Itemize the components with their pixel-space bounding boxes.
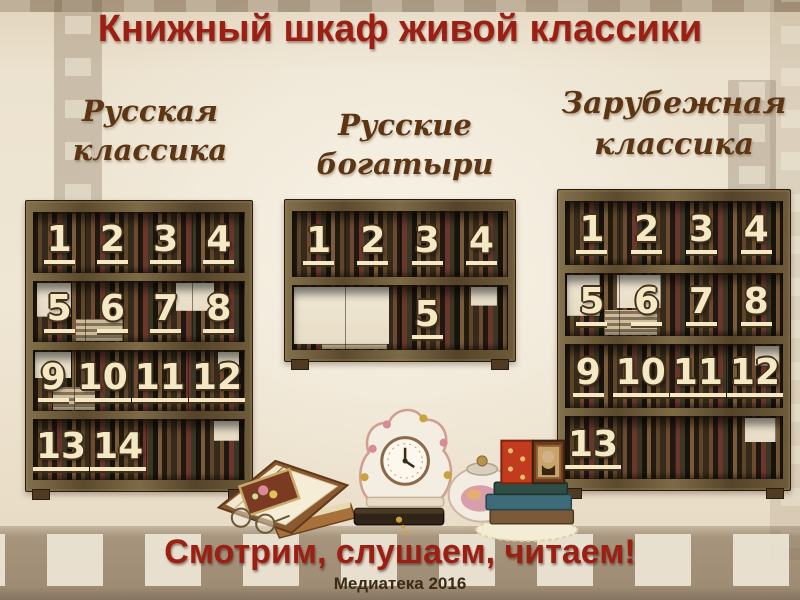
slogan-text: Смотрим, слушаем, читаем!	[0, 533, 800, 572]
book-number-link[interactable]: 3	[412, 223, 443, 265]
book-number-link[interactable]: 4	[203, 222, 234, 264]
shelf-cell: 1	[565, 203, 620, 264]
shelf-cell	[455, 287, 508, 350]
shelf-cell: 5	[401, 287, 455, 350]
bookcase-russian-bogatyrs: 12345	[284, 199, 516, 362]
shelf-row: 1234	[33, 212, 245, 273]
label-line: классика	[38, 131, 262, 170]
shelf-cell	[292, 287, 346, 350]
book-number-link[interactable]: 1	[303, 223, 334, 265]
book-number-link[interactable]: 5	[44, 291, 75, 333]
shelf-cell: 4	[455, 213, 508, 276]
label-line: классика	[552, 125, 796, 166]
label-line: Русские	[298, 106, 512, 145]
shelf-cell: 9	[33, 352, 75, 410]
shelf-row: 9101112	[565, 344, 783, 408]
shelf-cell: 6	[86, 283, 139, 341]
label-russian-bogatyrs: Русские богатыри	[298, 106, 512, 184]
book-number-link[interactable]: 10	[613, 355, 669, 397]
shelf-cell: 7	[140, 283, 193, 341]
book-number-link[interactable]: 6	[97, 291, 128, 333]
book-number-link[interactable]: 4	[741, 212, 772, 254]
shelf-row: 1234	[565, 201, 783, 265]
presentation-slide: Книжный шкаф живой классики Русская клас…	[0, 0, 800, 600]
book-number-link[interactable]: 10	[75, 360, 131, 402]
shelf-cell: 5	[565, 275, 620, 336]
credit-text: Медиатека 2016	[0, 574, 800, 594]
book-number-link[interactable]: 4	[466, 223, 497, 265]
book-number-link[interactable]: 7	[686, 284, 717, 326]
pencil-box	[354, 509, 443, 535]
book-number-link[interactable]: 6	[631, 284, 662, 326]
shelf-row: 5678	[33, 281, 245, 342]
label-line: богатыри	[298, 145, 512, 184]
shelf-cell: 3	[675, 203, 730, 264]
label-foreign-classics: Зарубежная классика	[552, 84, 796, 165]
shelf-cell: 7	[675, 275, 730, 336]
shelf-cell: 10	[75, 352, 132, 410]
shelf-cell: 5	[33, 283, 86, 341]
shelf-cell: 12	[727, 346, 783, 407]
shelf-cell: 11	[132, 352, 189, 410]
shelf-cell	[730, 418, 783, 479]
book-number-link[interactable]: 5	[576, 284, 607, 326]
icon-and-books-stack	[486, 441, 573, 524]
shelf-row: 1234	[292, 211, 508, 277]
porcelain-clock	[360, 410, 451, 507]
shelf-cell: 10	[613, 346, 670, 407]
bookcase-foreign-classics: 12345678910111213	[557, 189, 791, 491]
book-number-link[interactable]: 13	[33, 429, 89, 471]
shelf-cell: 4	[729, 203, 783, 264]
shelf-cell: 2	[346, 213, 400, 276]
book-number-link[interactable]: 7	[150, 291, 181, 333]
shelf-cell: 3	[140, 214, 193, 272]
label-line: Русская	[38, 92, 262, 131]
book-number-link[interactable]: 1	[576, 212, 607, 254]
book-number-link[interactable]: 8	[203, 291, 234, 333]
shelf-cell: 2	[620, 203, 675, 264]
book-number-link[interactable]: 2	[631, 212, 662, 254]
still-life-illustration	[214, 390, 580, 542]
book-number-link[interactable]: 3	[686, 212, 717, 254]
book-number-link[interactable]: 11	[670, 355, 726, 397]
shelf-cell: 1	[292, 213, 346, 276]
shelf-row: 5678	[565, 273, 783, 337]
book-number-link[interactable]: 5	[412, 297, 443, 339]
shelf-cell: 8	[729, 275, 783, 336]
shelf-cell	[676, 418, 730, 479]
label-russian-classics: Русская классика	[38, 92, 262, 170]
shelf-cell	[346, 287, 400, 350]
slide-title: Книжный шкаф живой классики	[0, 8, 800, 51]
book-number-link[interactable]: 1	[44, 222, 75, 264]
shelf-cell: 4	[193, 214, 245, 272]
shelf-row: 5	[292, 285, 508, 351]
shelf-cell	[147, 421, 196, 479]
book-number-link[interactable]: 11	[132, 360, 188, 402]
label-line: Зарубежная	[552, 84, 796, 125]
shelf-row: 13	[565, 416, 783, 480]
book-number-link[interactable]: 3	[150, 222, 181, 264]
shelf-cell: 6	[620, 275, 675, 336]
shelf-cell: 1	[33, 214, 86, 272]
shelf-cell: 13	[33, 421, 90, 479]
book-number-link[interactable]: 12	[727, 355, 783, 397]
shelf-cell	[622, 418, 676, 479]
shelf-cell: 11	[670, 346, 727, 407]
shelf-cell: 3	[401, 213, 455, 276]
book-number-link[interactable]: 2	[97, 222, 128, 264]
shelf-cell: 14	[90, 421, 147, 479]
book-number-link[interactable]: 14	[90, 429, 146, 471]
book-number-link[interactable]: 2	[357, 223, 388, 265]
shelf-cell: 8	[193, 283, 245, 341]
book-number-link[interactable]: 8	[741, 284, 772, 326]
shelf-cell: 2	[86, 214, 139, 272]
book-number-link[interactable]: 9	[38, 360, 69, 402]
